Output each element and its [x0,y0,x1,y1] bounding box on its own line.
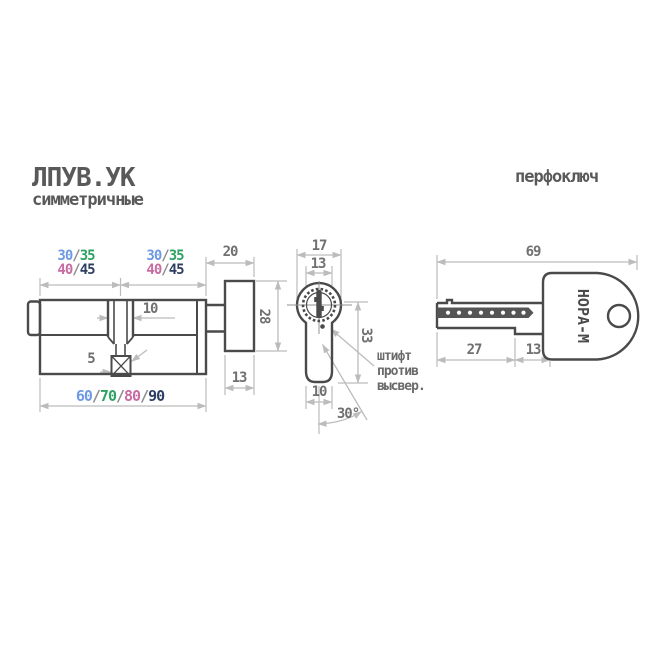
dim-cam-assembly-width: 20 [223,244,238,260]
dim-profile-body-width: 17 [312,238,327,254]
cam-flange [225,281,254,351]
cam-slot-walls [108,300,133,337]
technical-drawing-page: ЛПУВ.УК симметричные перфоключ 30/35 40/… [0,0,650,650]
dim-overall-lengths: 60/70/80/90 [76,387,164,405]
page-subtitle: симметричные [32,190,143,210]
keyway [316,290,321,318]
dim-half-lengths-left-row2: 40/45 [57,262,94,278]
anti-drill-pin [320,324,325,329]
plug-face-cap [28,302,40,336]
dim-cam-height: 28 [256,309,272,324]
dim-profile-fin-width: 10 [312,384,327,400]
cam-stem [206,305,225,332]
key-head-hole [608,305,630,327]
key-brand: НОРА-М [574,289,592,343]
blade-top-edge [437,300,543,303]
key-type-label: перфоключ [515,167,598,187]
anti-drill-note-line2: против [377,364,425,379]
dim-half-lengths-right-row2: 40/45 [146,262,183,278]
anti-drill-note-line3: высвер. [377,379,425,394]
cylinder-side-view [28,281,254,376]
blade-bottom-edge [437,328,543,334]
dim-cam-tip-offset: 5 [87,351,94,367]
dim-key-blade-length: 27 [467,342,482,358]
dim-key-shoulder-width: 13 [526,342,541,358]
anti-drill-note: штифт против высвер. [377,349,425,394]
dim-key-total-length: 69 [526,244,541,260]
dim-profile-plug-width: 13 [311,256,326,272]
cylinder-technical-drawing [0,0,650,650]
dim-key-turn-angle: 30° [337,406,359,422]
dim-profile-height: 33 [358,328,374,343]
dim-cam-slot-width: 10 [143,301,158,317]
anti-drill-note-line1: штифт [377,349,425,364]
dim-cam-thickness: 13 [232,370,247,386]
cylinder-body [40,300,206,374]
blade-milled-groove [437,308,534,319]
page-title: ЛПУВ.УК [32,163,135,193]
